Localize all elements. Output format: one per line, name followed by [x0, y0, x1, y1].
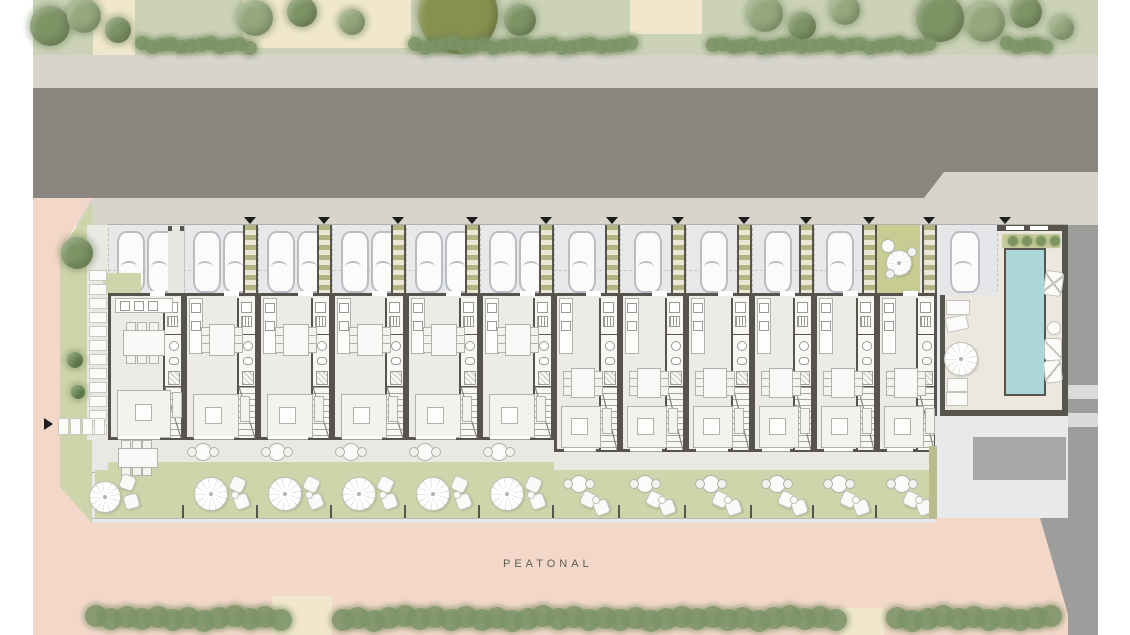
kitchen-counter	[819, 298, 833, 354]
toilet-icon	[465, 341, 475, 351]
patio-table	[881, 239, 895, 253]
bistro-chair	[187, 447, 197, 457]
outdoor-chair	[946, 392, 968, 406]
entrance-marker-icon	[738, 217, 750, 224]
dining-chair	[234, 343, 243, 353]
car-windshield	[572, 261, 588, 273]
path-arrow-icon	[44, 418, 53, 430]
appliance-icon	[920, 316, 931, 327]
car-windshield	[449, 261, 465, 273]
hob-sink-icon	[339, 303, 349, 313]
coffee-table	[279, 407, 296, 424]
dining-chair	[137, 322, 147, 331]
garden-terrace	[554, 452, 620, 470]
parking-pad	[973, 437, 1066, 480]
hob-sink-icon	[759, 321, 769, 331]
car-windshield	[523, 261, 539, 273]
bathroom	[163, 334, 181, 387]
bistro-chair	[695, 479, 705, 489]
car	[415, 231, 443, 293]
toilet-icon	[799, 341, 809, 351]
appliance-icon	[389, 302, 400, 313]
house-unit	[258, 293, 332, 440]
front-door-gap	[903, 291, 918, 296]
armchair	[602, 408, 612, 434]
shower-icon	[538, 371, 550, 385]
house-unit	[814, 293, 877, 452]
side-table	[305, 491, 313, 499]
stepping-stone	[58, 418, 69, 435]
dining-chair	[126, 355, 136, 364]
armchair	[172, 392, 182, 418]
tree-icon	[67, 352, 83, 368]
car-windshield	[768, 261, 784, 273]
toilet-icon	[539, 341, 549, 351]
side-table	[724, 496, 732, 504]
stepping-stone	[89, 396, 107, 407]
shower-icon	[604, 371, 616, 385]
appliance-icon	[463, 316, 474, 327]
bistro-chair	[908, 479, 918, 489]
shrub-icon	[1050, 236, 1060, 246]
patio-chair	[885, 269, 895, 279]
dining-chair	[594, 386, 603, 396]
parking-spot-divider	[620, 228, 621, 292]
stepping-stone	[89, 382, 107, 393]
dining-chair	[456, 343, 465, 353]
kitchen-counter	[559, 298, 573, 354]
dining-chair	[530, 343, 539, 353]
dining-chair	[917, 386, 926, 396]
entrance-marker-icon	[606, 217, 618, 224]
car-windshield	[227, 261, 243, 273]
sink-icon	[317, 357, 327, 365]
street-crossing-band	[1068, 413, 1098, 427]
parasol-icon	[490, 477, 524, 511]
kitchen-counter	[115, 298, 173, 313]
hob-sink-icon	[884, 321, 894, 331]
sink-icon	[922, 357, 932, 365]
bistro-chair	[651, 479, 661, 489]
appliance-icon	[797, 302, 808, 313]
appliance-icon	[389, 316, 400, 327]
parasol-icon	[194, 477, 228, 511]
car-windshield	[301, 261, 317, 273]
bistro-chair	[431, 447, 441, 457]
toilet-icon	[922, 341, 932, 351]
coffee-table	[205, 407, 222, 424]
stepping-stone	[70, 418, 81, 435]
house-unit	[686, 293, 752, 452]
side-table	[592, 496, 600, 504]
stepping-stone	[94, 418, 105, 435]
stepping-stone	[89, 298, 107, 309]
toilet-icon	[317, 341, 327, 351]
hob-sink-icon	[265, 321, 275, 331]
house-unit	[480, 293, 554, 440]
parasol-center	[103, 495, 107, 499]
entry-walkway	[243, 225, 258, 293]
sink-icon	[671, 357, 681, 365]
side-table	[527, 491, 535, 499]
street-crossing-band	[1068, 385, 1098, 399]
appliance-icon	[537, 316, 548, 327]
dining-chair	[349, 343, 358, 353]
entrance-marker-icon	[244, 217, 256, 224]
dining-chair	[126, 322, 136, 331]
parking-spot-divider	[686, 228, 687, 292]
patio-chair	[907, 247, 917, 257]
hob-sink-icon	[627, 303, 637, 313]
appliance-icon	[603, 302, 614, 313]
parking-spot-divider	[258, 228, 259, 292]
dining-table	[118, 448, 158, 468]
armchair	[388, 396, 398, 422]
dining-chair	[201, 343, 210, 353]
planting-strip	[1002, 234, 1060, 248]
armchair	[800, 408, 810, 434]
parking-spot-divider	[406, 228, 407, 292]
bistro-chair	[483, 447, 493, 457]
sink-icon	[391, 357, 401, 365]
tree-icon	[1050, 16, 1074, 40]
tree-icon	[504, 4, 536, 36]
shower-icon	[670, 371, 682, 385]
car-windshield	[638, 261, 654, 273]
car	[489, 231, 517, 293]
stepping-stone	[89, 340, 107, 351]
armchair	[240, 396, 250, 422]
side-table	[379, 491, 387, 499]
house-unit	[184, 293, 258, 440]
wall-window	[1030, 226, 1048, 230]
appliance-icon	[537, 302, 548, 313]
front-lawn	[103, 273, 141, 293]
bistro-chair	[357, 447, 367, 457]
wall-window	[1006, 226, 1024, 230]
parking-spot-divider	[814, 228, 815, 292]
garden-terrace	[877, 452, 937, 470]
peatonal-label: PEATONAL	[503, 558, 593, 570]
appliance-icon	[167, 316, 178, 327]
bistro-chair	[783, 479, 793, 489]
entrance-marker-icon	[392, 217, 404, 224]
house-unit	[877, 293, 937, 452]
coffee-table	[769, 418, 786, 435]
car-windshield	[493, 261, 509, 273]
tree-icon	[71, 385, 85, 399]
bistro-chair	[563, 479, 573, 489]
hob-sink-icon	[191, 321, 201, 331]
shower-icon	[464, 371, 476, 385]
hob-sink-icon	[693, 321, 703, 331]
pool-side-table	[1047, 321, 1061, 335]
armchair	[925, 408, 935, 434]
dining-table	[894, 368, 918, 398]
hedge-bush	[1040, 605, 1062, 627]
dining-chair	[149, 355, 159, 364]
armchair	[314, 396, 324, 422]
coffee-table	[894, 418, 911, 435]
hob-sink-icon	[759, 303, 769, 313]
parking-dashed-edge	[997, 228, 998, 292]
bistro-chair	[629, 479, 639, 489]
front-door-gap	[520, 291, 535, 296]
house-unit	[620, 293, 686, 452]
coffee-table	[427, 407, 444, 424]
car-windshield	[121, 261, 137, 273]
appliance-icon	[797, 316, 808, 327]
toilet-icon	[737, 341, 747, 351]
entry-walkway	[391, 225, 406, 293]
car-windshield	[954, 261, 972, 273]
dining-chair	[563, 386, 572, 396]
hob-sink-icon	[487, 321, 497, 331]
entrance-marker-icon	[466, 217, 478, 224]
dining-chair	[149, 322, 159, 331]
coffee-table	[501, 407, 518, 424]
hob-sink-icon	[821, 321, 831, 331]
side-table	[915, 496, 923, 504]
dining-table	[505, 324, 531, 356]
appliance-icon	[315, 316, 326, 327]
entry-path	[168, 225, 185, 293]
garden-terrace	[686, 452, 752, 470]
garden-terrace	[620, 452, 686, 470]
car	[341, 231, 369, 293]
sun-lounger	[1044, 338, 1062, 361]
entry-walkway	[922, 225, 937, 293]
entry-walkway	[671, 225, 686, 293]
park-path	[630, 0, 702, 34]
stepping-stone	[89, 326, 107, 337]
toilet-icon	[671, 341, 681, 351]
entrance-marker-icon	[318, 217, 330, 224]
side-table	[453, 491, 461, 499]
hob-sink-icon	[561, 321, 571, 331]
appliance-icon	[241, 302, 252, 313]
shower-icon	[316, 371, 328, 385]
side-table	[790, 496, 798, 504]
car	[826, 231, 854, 293]
bistro-chair	[717, 479, 727, 489]
car-windshield	[345, 261, 361, 273]
stepping-stone	[89, 312, 107, 323]
house-unit	[108, 293, 184, 440]
entrance-marker-icon	[800, 217, 812, 224]
parasol-center	[283, 492, 287, 496]
front-door-gap	[372, 291, 387, 296]
dining-chair	[854, 386, 863, 396]
bistro-chair	[823, 479, 833, 489]
bistro-chair	[335, 447, 345, 457]
coffee-table	[135, 404, 152, 421]
dining-chair	[629, 386, 638, 396]
parasol-icon	[342, 477, 376, 511]
dining-table	[769, 368, 793, 398]
sink-icon	[737, 357, 747, 365]
sink-icon	[465, 357, 475, 365]
house-unit	[554, 293, 620, 452]
hob-sink-icon	[134, 301, 144, 311]
entry-walkway	[862, 225, 877, 293]
dining-chair	[792, 386, 801, 396]
dining-chair	[423, 343, 432, 353]
car-windshield	[197, 261, 213, 273]
entry-walkway	[605, 225, 620, 293]
hedge-bush	[922, 37, 936, 51]
hob-sink-icon	[884, 303, 894, 313]
front-door-gap	[446, 291, 461, 296]
car-windshield	[151, 261, 167, 273]
bistro-chair	[505, 447, 515, 457]
hedge-bush	[825, 609, 847, 631]
stepping-stone	[89, 270, 107, 281]
tree-icon	[339, 9, 365, 35]
toilet-icon	[243, 341, 253, 351]
dining-table	[571, 368, 595, 398]
hob-sink-icon	[191, 303, 201, 313]
hedge-bush	[270, 609, 292, 631]
toilet-icon	[605, 341, 615, 351]
hob-sink-icon	[693, 303, 703, 313]
dining-chair	[497, 343, 506, 353]
toilet-icon	[169, 341, 179, 351]
house-unit	[406, 293, 480, 440]
car-windshield	[271, 261, 287, 273]
car	[568, 231, 596, 293]
parasol-center	[505, 492, 509, 496]
hob-sink-icon	[265, 303, 275, 313]
appliance-icon	[463, 302, 474, 313]
shrub-icon	[1036, 236, 1046, 246]
parasol-icon	[89, 481, 121, 513]
sink-icon	[799, 357, 809, 365]
front-door-gap	[586, 291, 601, 296]
entrance-marker-icon	[923, 217, 935, 224]
dining-table	[283, 324, 309, 356]
dining-chair	[886, 386, 895, 396]
bistro-chair	[409, 447, 419, 457]
house-unit	[332, 293, 406, 440]
tree-icon	[788, 12, 816, 40]
parking-spot-divider	[332, 228, 333, 292]
front-courtyard	[877, 225, 920, 293]
coffee-table	[703, 418, 720, 435]
hedge-bush	[243, 41, 257, 55]
car-windshield	[704, 261, 720, 273]
bistro-chair	[761, 479, 771, 489]
entry-walkway	[539, 225, 554, 293]
bistro-chair	[209, 447, 219, 457]
appliance-icon	[735, 302, 746, 313]
dining-table	[703, 368, 727, 398]
shower-icon	[390, 371, 402, 385]
dining-chair	[121, 440, 131, 449]
sink-icon	[539, 357, 549, 365]
car	[267, 231, 295, 293]
coffee-table	[637, 418, 654, 435]
armchair	[536, 396, 546, 422]
shower-icon	[168, 371, 180, 385]
tree-icon	[30, 6, 70, 46]
hob-sink-icon	[413, 321, 423, 331]
dining-chair	[660, 386, 669, 396]
dining-table	[431, 324, 457, 356]
side-table	[658, 496, 666, 504]
parasol-center	[431, 492, 435, 496]
armchair	[734, 408, 744, 434]
bistro-chair	[845, 479, 855, 489]
hob-sink-icon	[120, 301, 130, 311]
front-door-gap	[652, 291, 667, 296]
stepping-stone	[89, 284, 107, 295]
armchair	[462, 396, 472, 422]
stepping-stone	[89, 354, 107, 365]
shower-icon	[736, 371, 748, 385]
coffee-table	[831, 418, 848, 435]
garden-terrace	[752, 452, 814, 470]
hedge-bush	[1039, 40, 1053, 54]
side-table	[231, 491, 239, 499]
dining-chair	[695, 386, 704, 396]
parking-spot-divider	[184, 228, 185, 292]
bistro-chair	[585, 479, 595, 489]
car	[193, 231, 221, 293]
hob-sink-icon	[413, 303, 423, 313]
appliance-icon	[669, 302, 680, 313]
dining-table	[637, 368, 661, 398]
coffee-table	[353, 407, 370, 424]
front-door-gap	[224, 291, 239, 296]
appliance-icon	[315, 302, 326, 313]
tree-icon	[916, 0, 964, 42]
outdoor-sofa	[946, 300, 970, 315]
dining-table	[123, 330, 165, 356]
hob-sink-icon	[148, 301, 158, 311]
dining-chair	[308, 343, 317, 353]
kitchen-counter	[882, 298, 896, 354]
car	[700, 231, 728, 293]
hob-sink-icon	[339, 321, 349, 331]
stepping-stone	[82, 418, 93, 435]
appliance-icon	[735, 316, 746, 327]
parasol-icon	[416, 477, 450, 511]
dining-chair	[382, 343, 391, 353]
front-door-gap	[780, 291, 795, 296]
garden-bottom-line	[92, 518, 937, 519]
entrance-marker-icon	[863, 217, 875, 224]
sun-lounger	[1042, 270, 1064, 297]
tree-icon	[1010, 0, 1042, 28]
sun-lounger	[1043, 359, 1063, 384]
car	[634, 231, 662, 293]
garden-terrace	[814, 452, 877, 470]
dining-chair	[142, 440, 152, 449]
parking-spot-divider	[554, 228, 555, 292]
car	[950, 231, 980, 293]
entry-walkway	[799, 225, 814, 293]
entrance-marker-icon	[999, 217, 1011, 224]
site-plan: PEATONAL	[0, 0, 1130, 635]
parasol-center	[357, 492, 361, 496]
dining-chair	[761, 386, 770, 396]
fence-post	[168, 226, 172, 231]
parking-spot-divider	[752, 228, 753, 292]
outdoor-chair	[947, 378, 968, 392]
hob-sink-icon	[821, 303, 831, 313]
kitchen-counter	[691, 298, 705, 354]
